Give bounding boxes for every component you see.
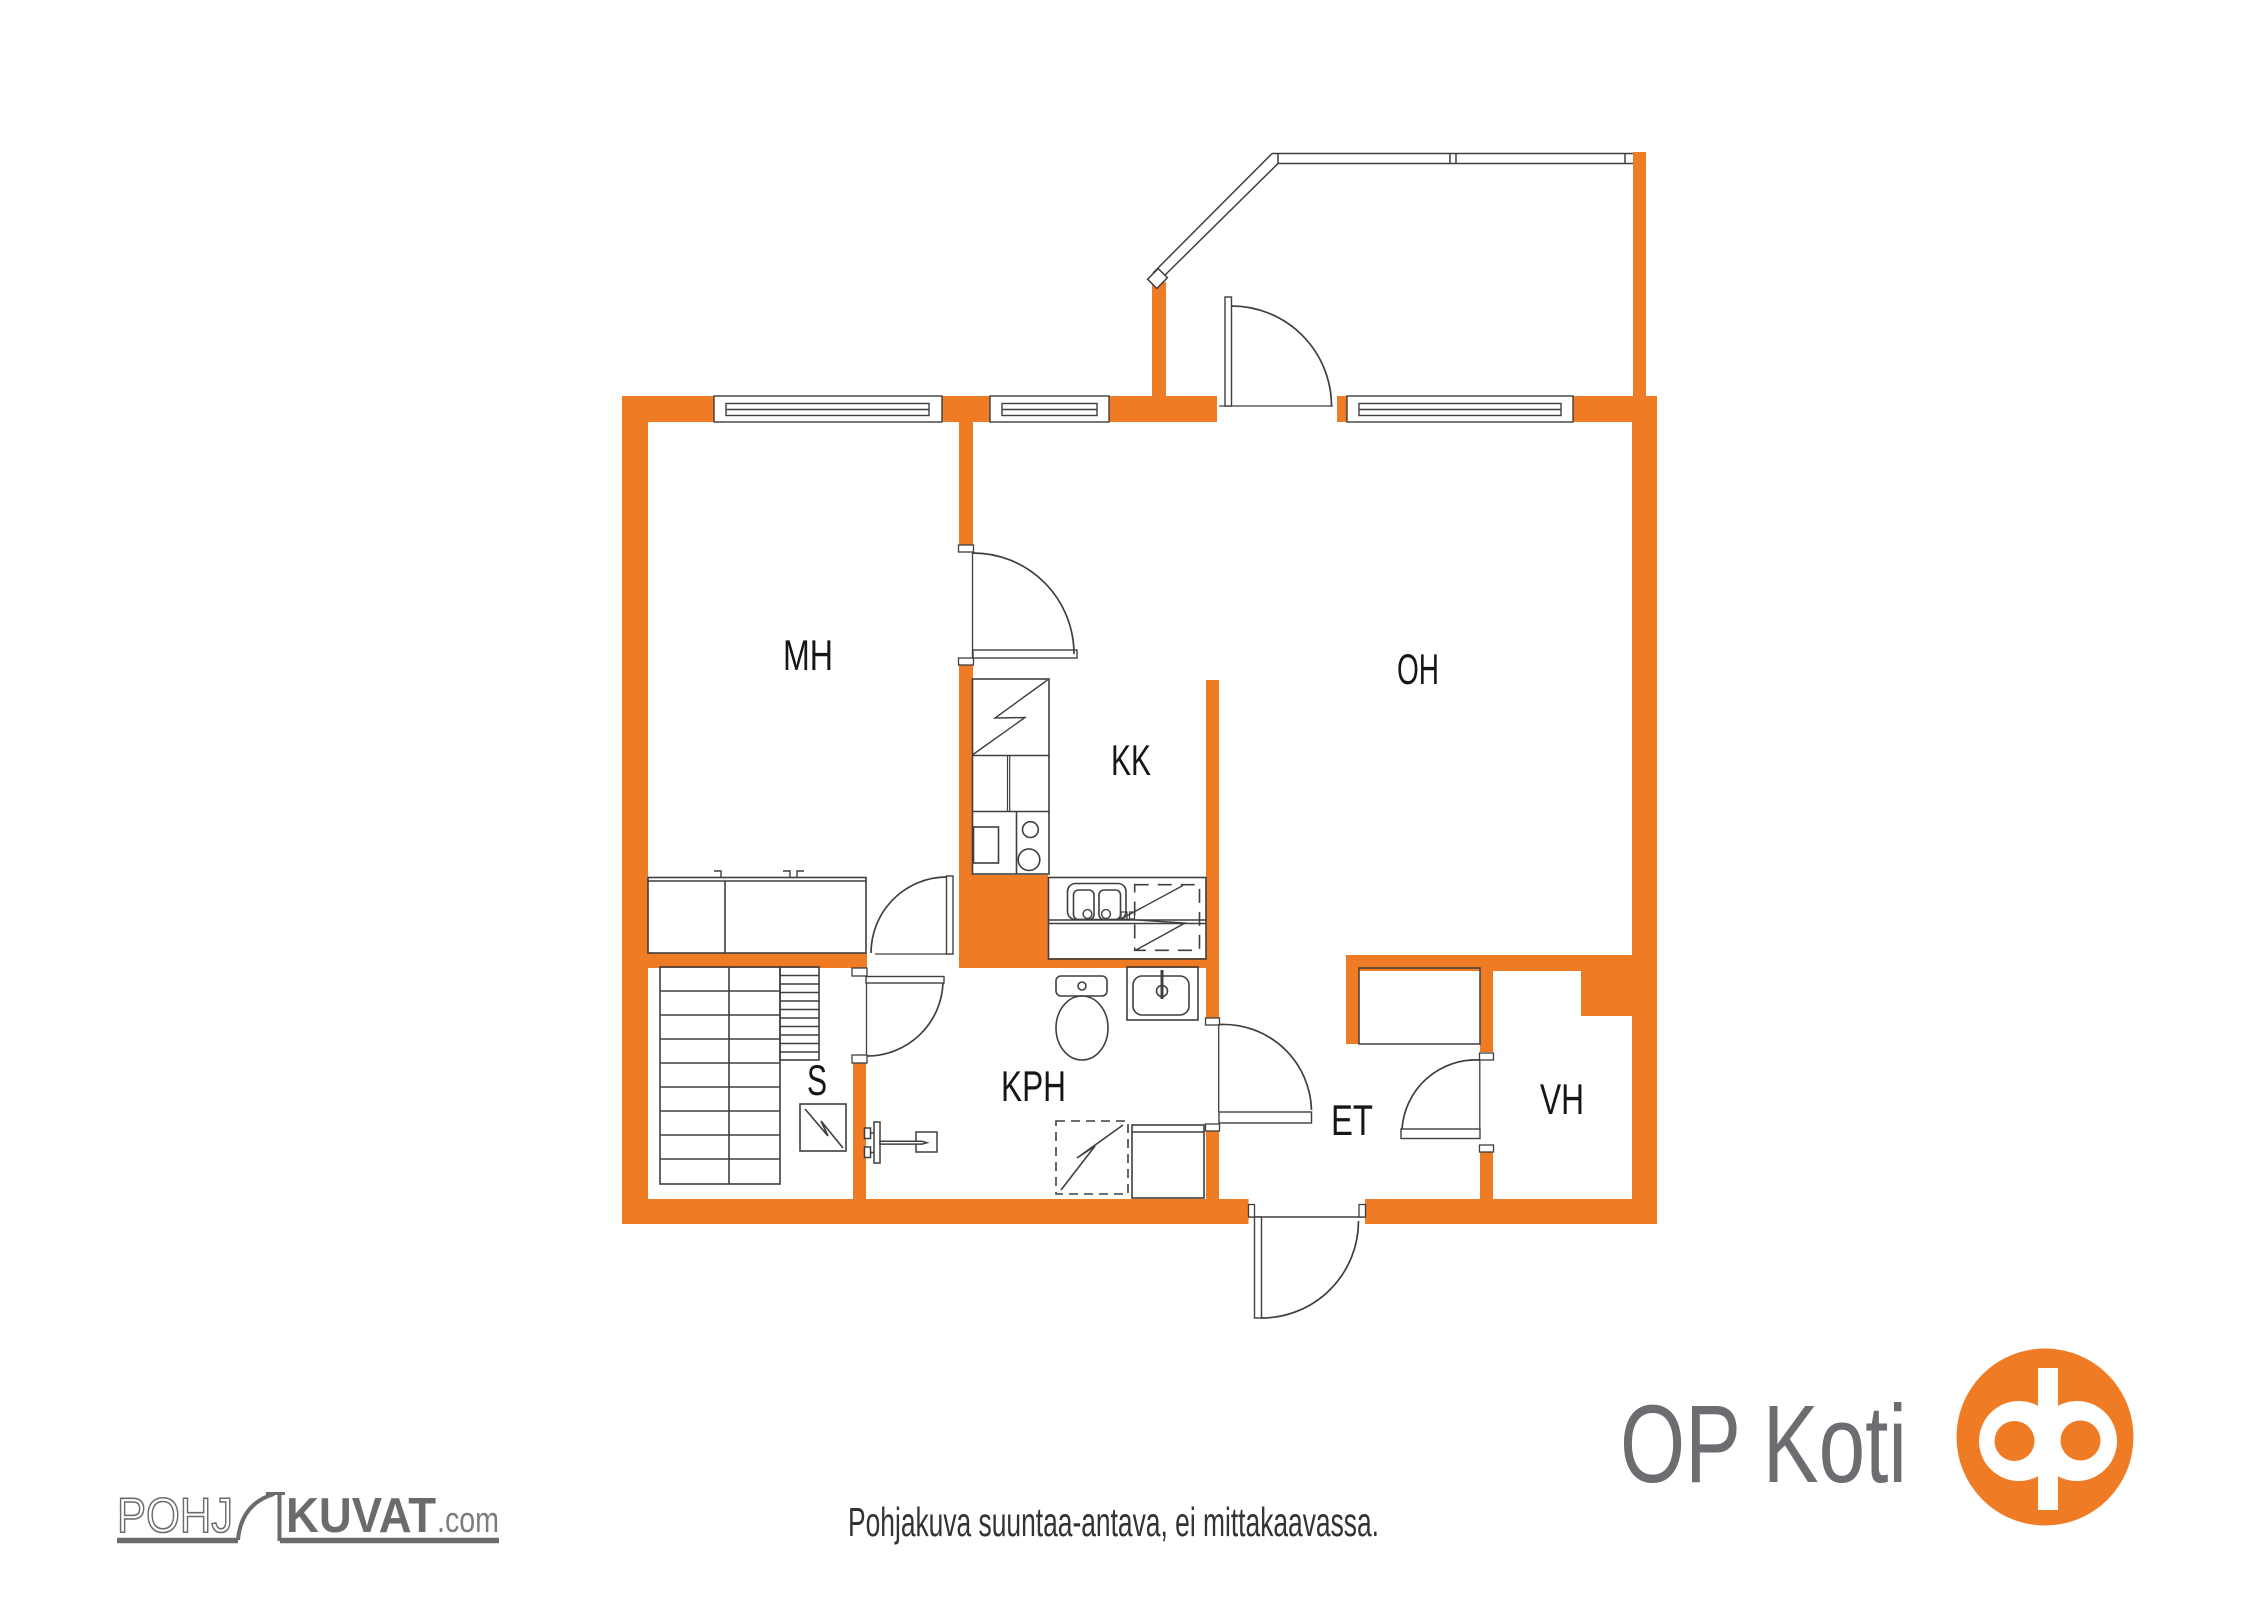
svg-text:MH: MH — [783, 632, 833, 680]
svg-text:OP Koti: OP Koti — [1620, 1383, 1907, 1506]
svg-text:KK: KK — [1111, 737, 1151, 785]
svg-text:ET: ET — [1331, 1097, 1373, 1145]
svg-text:POHJ: POHJ — [117, 1489, 233, 1543]
svg-text:S: S — [807, 1057, 827, 1105]
svg-text:.com: .com — [437, 1499, 499, 1540]
svg-text:OH: OH — [1397, 646, 1439, 694]
svg-text:KUVAT: KUVAT — [286, 1489, 436, 1543]
svg-text:VH: VH — [1540, 1076, 1584, 1124]
svg-text:Pohjakuva suuntaa-antava, ei m: Pohjakuva suuntaa-antava, ei mittakaavas… — [848, 1499, 1379, 1545]
svg-text:KPH: KPH — [1001, 1063, 1066, 1111]
